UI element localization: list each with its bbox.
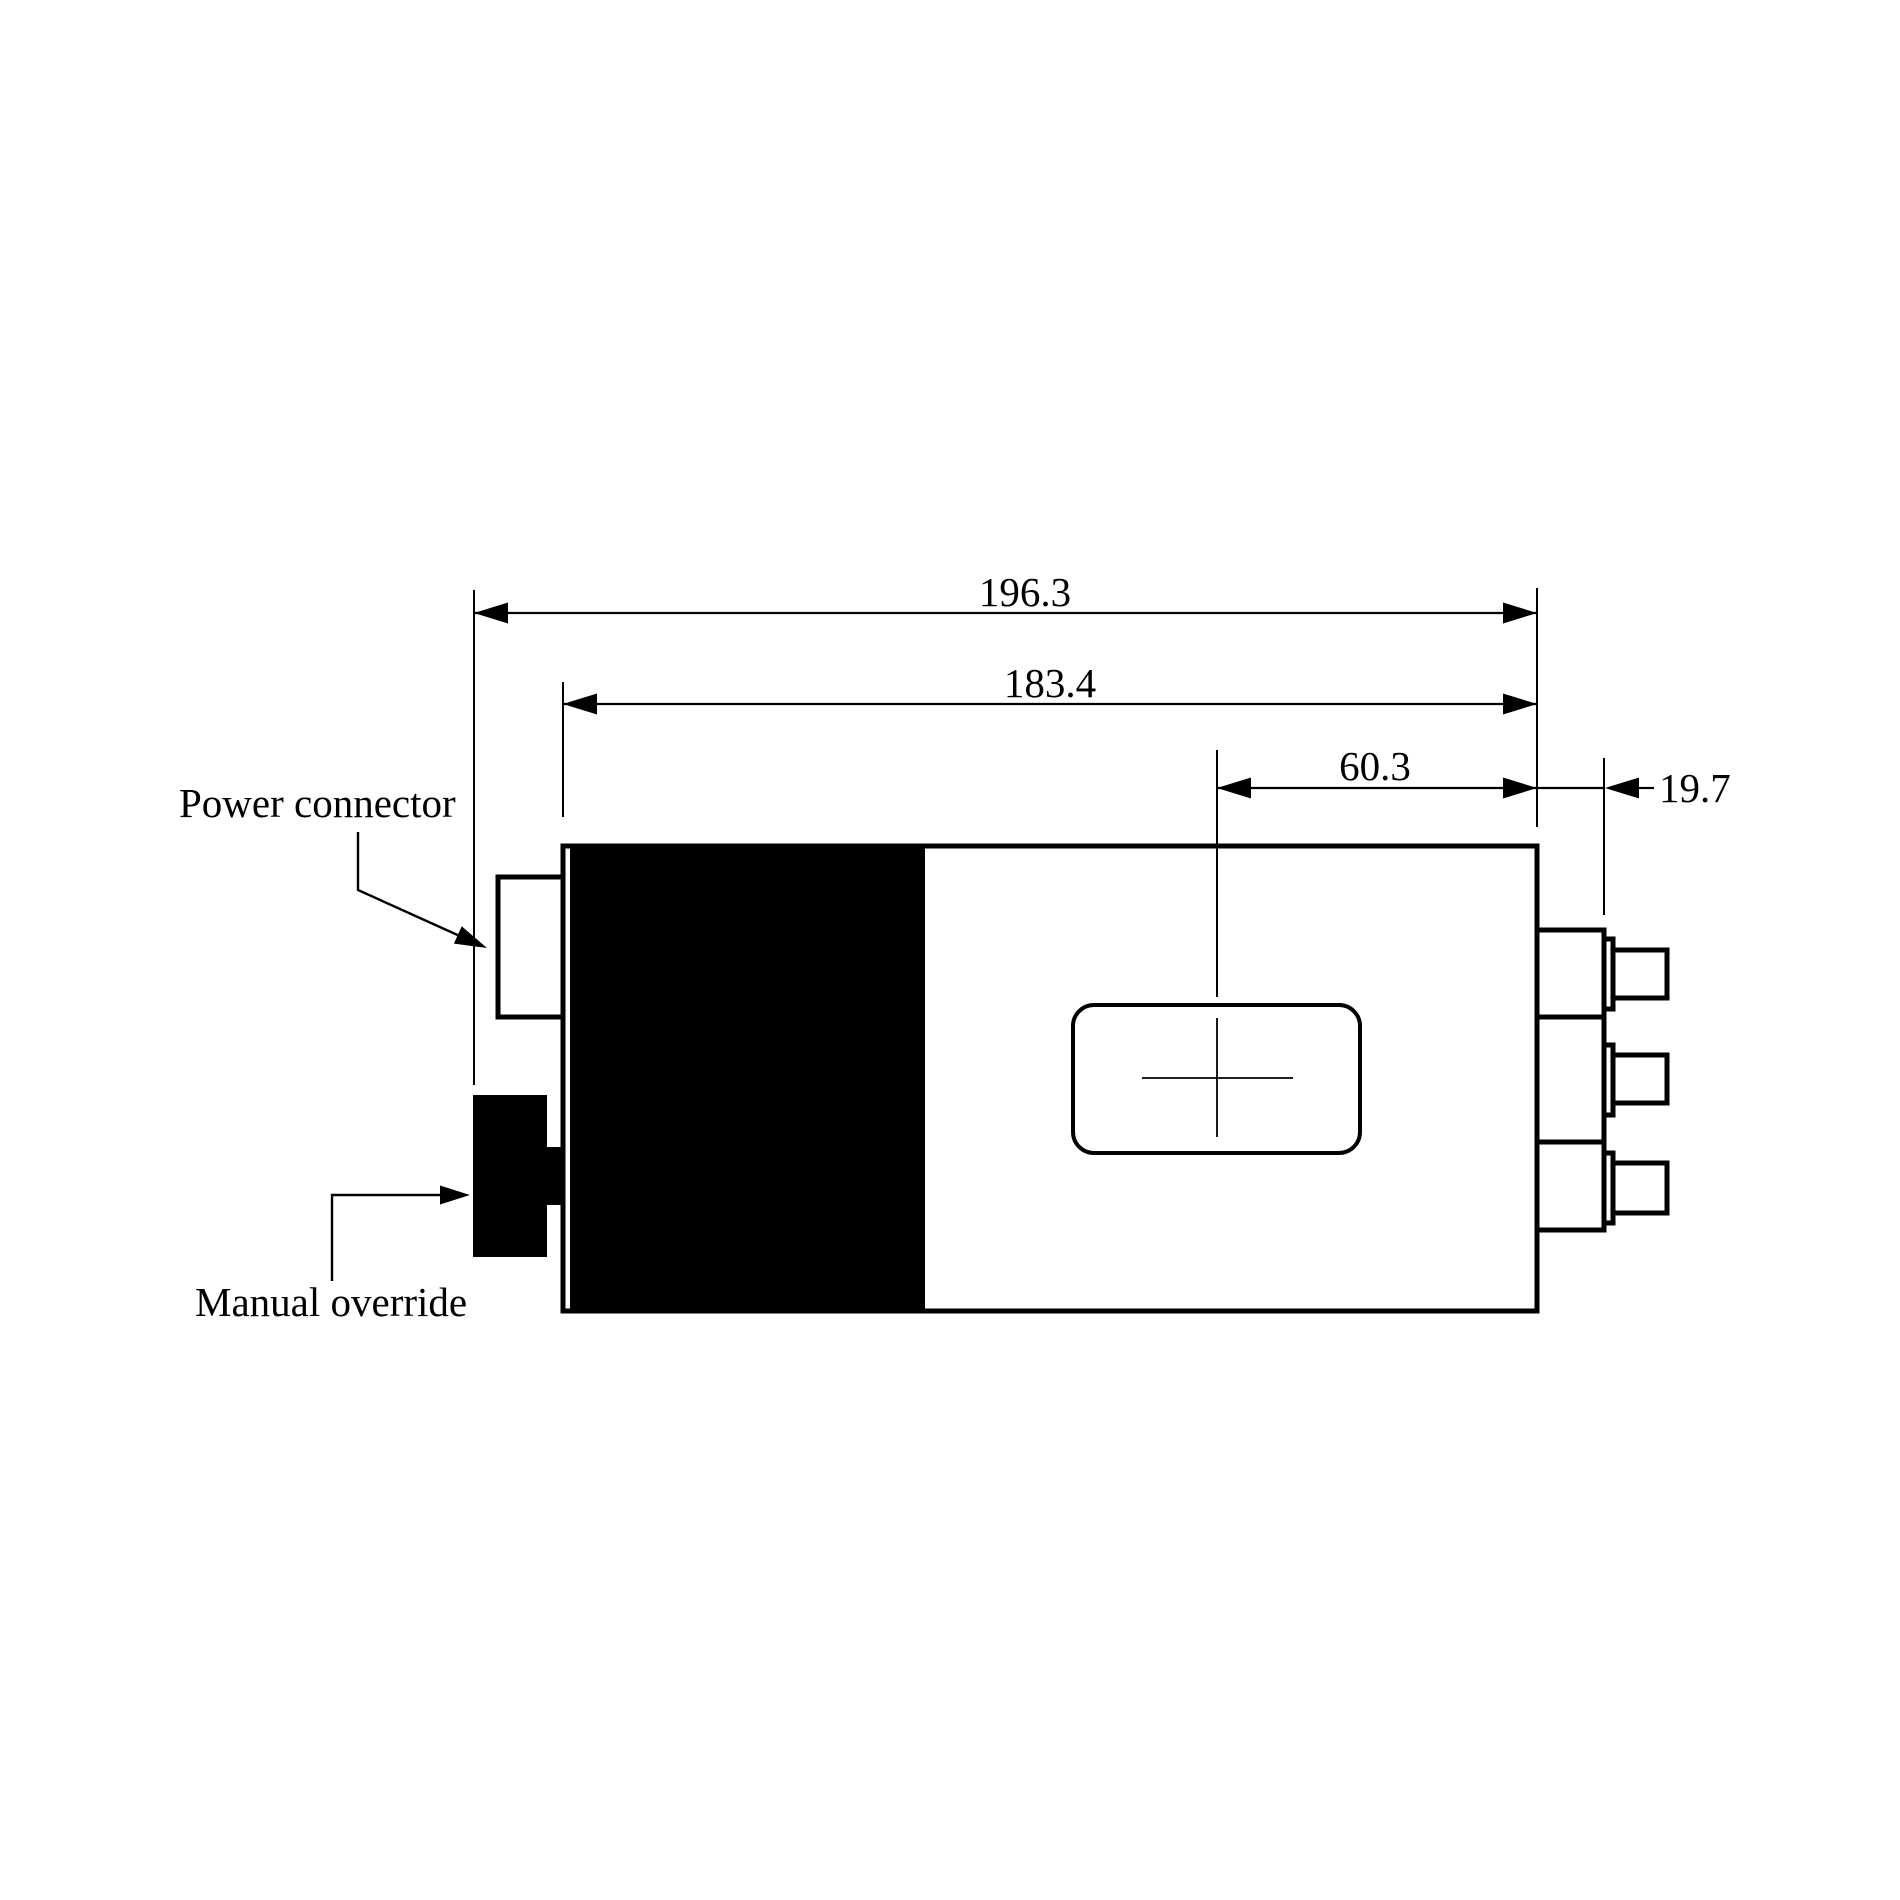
connector-1-stub (1613, 950, 1667, 998)
connector-3-block (1537, 1142, 1604, 1230)
connector-2-block (1537, 1017, 1604, 1142)
connector-2-stub (1613, 1055, 1667, 1103)
callout-power-connector: Power connector (179, 780, 487, 948)
connector-1-block (1537, 930, 1604, 1017)
technical-dimension-drawing: 196.3 183.4 60.3 19.7 Power connector Ma… (0, 0, 1900, 1900)
dim-text-body-width: 183.4 (1004, 660, 1096, 706)
connector-3 (1537, 1142, 1667, 1230)
dimension-overall-width: 196.3 (474, 569, 1537, 624)
arrowhead-connector (1605, 778, 1639, 799)
manual-override-leader-arrowhead (440, 1186, 470, 1205)
arrowhead-port-right (1503, 778, 1537, 799)
manual-override-stem (547, 1147, 561, 1205)
arrowhead-port-left (1217, 778, 1251, 799)
connector-1 (1537, 930, 1667, 1017)
device (473, 846, 1667, 1311)
connector-3-stub (1613, 1163, 1667, 1213)
arrowhead-overall-right (1503, 603, 1537, 624)
power-connector-outline (498, 877, 566, 1017)
dim-text-connector-protrusion: 19.7 (1659, 765, 1731, 811)
dim-text-port-offset: 60.3 (1339, 743, 1411, 789)
arrowhead-overall-left (474, 603, 508, 624)
motor-section-black (570, 848, 925, 1309)
arrowhead-body-right (1503, 694, 1537, 715)
arrowhead-body-left (563, 694, 597, 715)
callout-manual-override: Manual override (195, 1186, 470, 1326)
manual-override-label: Manual override (195, 1279, 467, 1325)
power-connector-leader (358, 832, 462, 937)
manual-override-knob (473, 1095, 547, 1257)
power-connector-leader-arrowhead (454, 926, 487, 948)
dimension-connector-protrusion: 19.7 (1605, 765, 1731, 811)
dim-text-overall-width: 196.3 (979, 569, 1071, 615)
dimension-port-offset: 60.3 (1217, 743, 1604, 799)
power-connector-label: Power connector (179, 780, 456, 826)
manual-override-leader (332, 1195, 443, 1281)
dimension-body-width: 183.4 (563, 660, 1537, 715)
connector-2 (1537, 1017, 1667, 1142)
